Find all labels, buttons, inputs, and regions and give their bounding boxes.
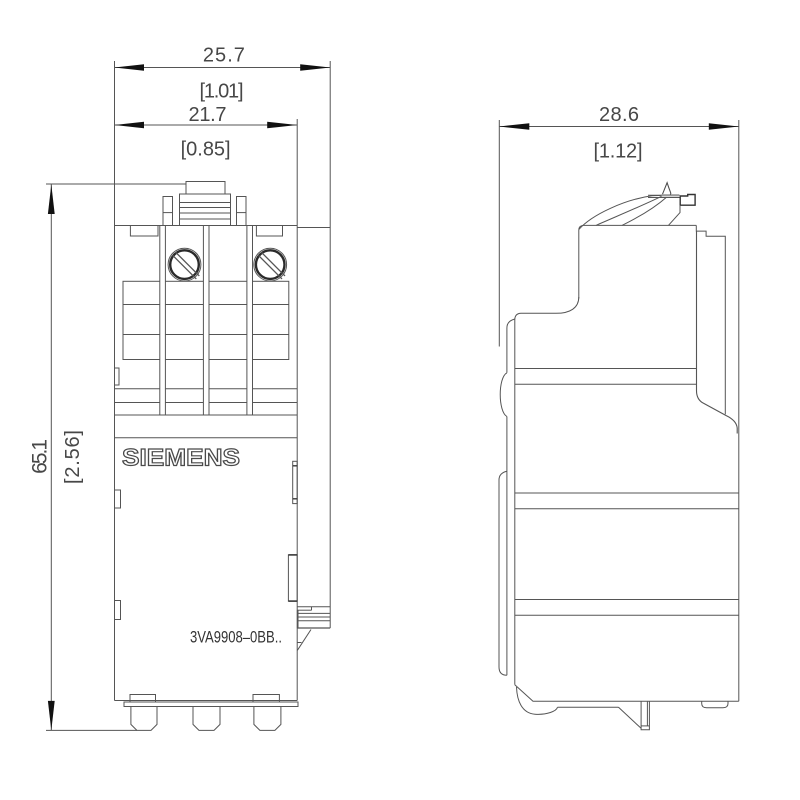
svg-text:65.1: 65.1 <box>29 439 52 474</box>
svg-text:[1.12]: [1.12] <box>594 141 643 163</box>
svg-text:3VA9908–0BB..: 3VA9908–0BB.. <box>190 628 282 647</box>
svg-text:28.6: 28.6 <box>599 104 639 126</box>
svg-text:21.7: 21.7 <box>189 104 227 126</box>
svg-text:[1.01]: [1.01] <box>200 81 244 103</box>
svg-text:25.7: 25.7 <box>203 45 245 67</box>
svg-text:SIEMENS: SIEMENS <box>122 445 240 472</box>
svg-text:[0.85]: [0.85] <box>181 138 231 160</box>
svg-text:[2.56]: [2.56] <box>62 430 84 484</box>
